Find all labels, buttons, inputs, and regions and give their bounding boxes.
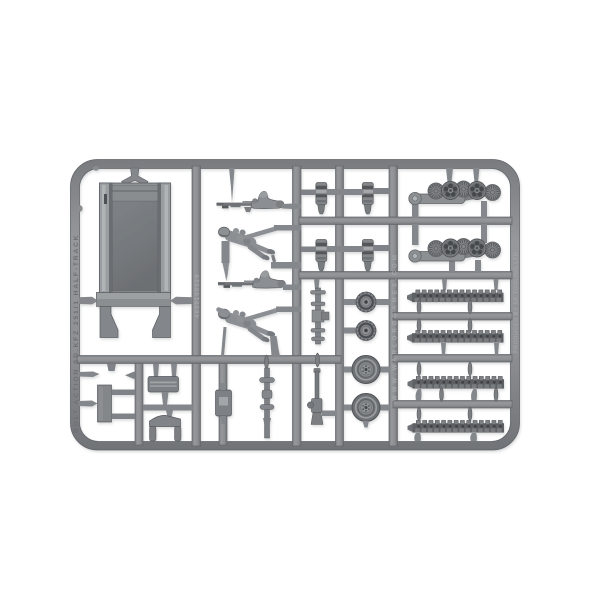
svg-text:4030100026: 4030100026 <box>194 274 201 318</box>
svg-text:WWW.WARLORDGAMES.COM: WWW.WARLORDGAMES.COM <box>393 252 399 401</box>
svg-text:PRODUCED BY SK TOOLING LTD: PRODUCED BY SK TOOLING LTD <box>514 252 520 353</box>
svg-text:BOLT ACTION SD.KFZ 251/1 HALF-: BOLT ACTION SD.KFZ 251/1 HALF-TRACK <box>73 234 80 433</box>
